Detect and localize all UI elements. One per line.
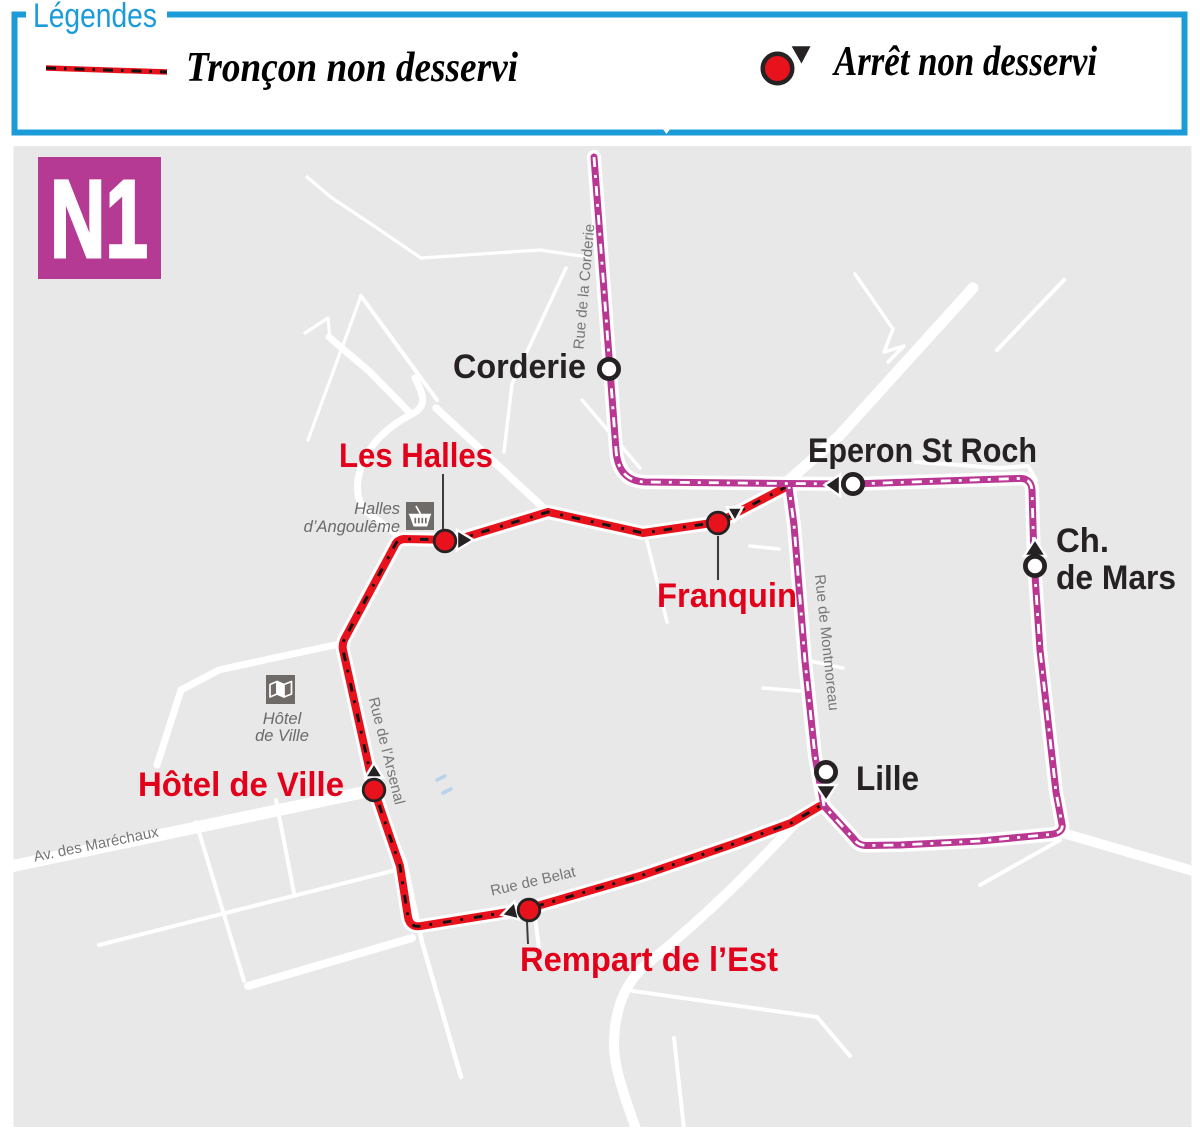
svg-text:Halles: Halles [354, 500, 400, 518]
svg-text:Corderie: Corderie [453, 348, 586, 386]
svg-text:de Ville: de Ville [255, 727, 309, 745]
svg-text:d’Angoulême: d’Angoulême [304, 518, 400, 536]
svg-text:Tronçon non desservi: Tronçon non desservi [186, 45, 518, 91]
svg-text:Hôtel: Hôtel [263, 710, 303, 728]
svg-text:Les Halles: Les Halles [339, 437, 493, 475]
svg-text:Rempart de l’Est: Rempart de l’Est [520, 941, 778, 979]
svg-text:Arrêt non desservi: Arrêt non desservi [832, 39, 1098, 85]
svg-text:Lille: Lille [856, 760, 919, 798]
svg-text:de Mars: de Mars [1056, 559, 1176, 597]
svg-text:Eperon St Roch: Eperon St Roch [808, 432, 1037, 470]
svg-text:N1: N1 [50, 158, 148, 281]
svg-text:Franquin: Franquin [657, 577, 797, 615]
svg-text:Ch.: Ch. [1056, 522, 1109, 560]
svg-text:Légendes: Légendes [33, 0, 157, 35]
svg-text:Hôtel de Ville: Hôtel de Ville [138, 766, 344, 804]
